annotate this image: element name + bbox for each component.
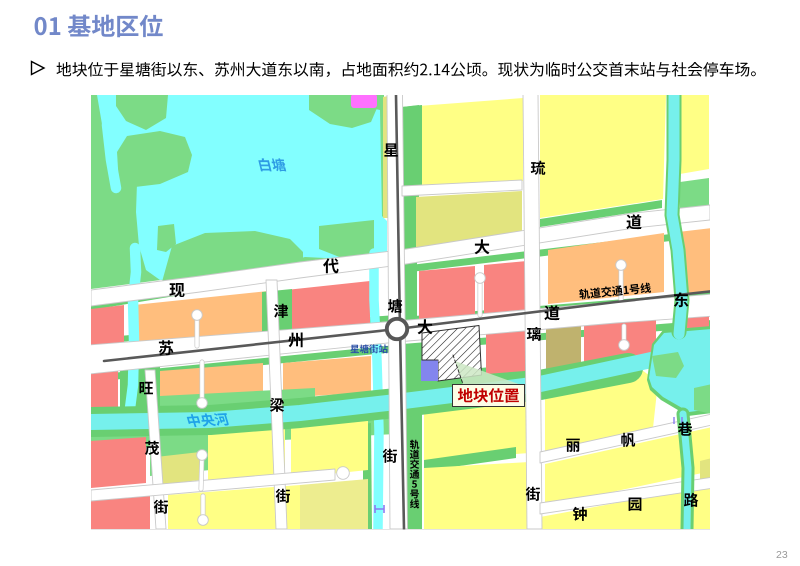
svg-text:23: 23 <box>776 549 788 561</box>
